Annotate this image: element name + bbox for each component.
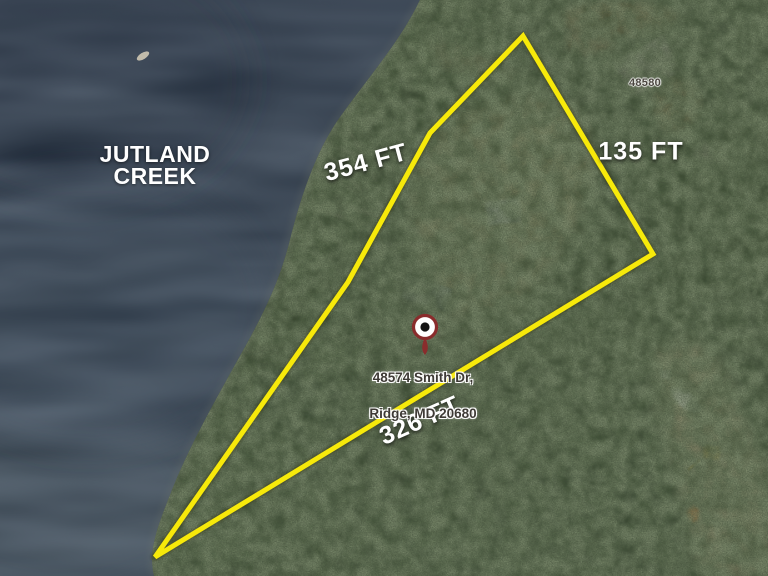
water-body-label: JUTLAND CREEK <box>85 143 225 187</box>
address-line1: 48574 Smith Dr, <box>369 369 476 387</box>
marker-address-label: 48574 Smith Dr, Ridge, MD 20680 <box>369 351 476 441</box>
address-line2: Ridge, MD 20680 <box>369 405 476 423</box>
satellite-map[interactable]: JUTLAND CREEK 354 FT 135 FT 326 FT 48580… <box>0 0 768 576</box>
parcel-number-label: 48580 <box>629 77 661 89</box>
measurement-label-135ft: 135 FT <box>598 138 683 167</box>
